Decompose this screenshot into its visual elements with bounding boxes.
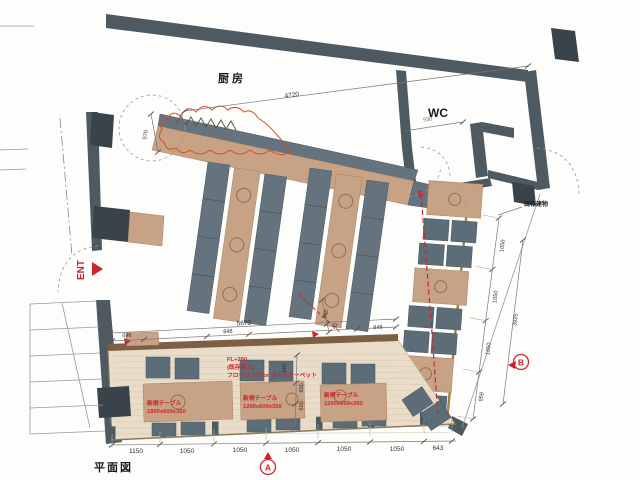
- witness-line: [483, 215, 499, 218]
- chair: [451, 220, 477, 243]
- chair: [423, 218, 449, 241]
- existing-note-leader: [498, 207, 522, 215]
- dim-kitchen-width: 4720: [284, 91, 300, 100]
- low-table-left: [97, 386, 131, 418]
- dim-right-0: 1050: [499, 239, 506, 252]
- entrance-arrow: [92, 262, 103, 276]
- dim-bottom-line: [112, 441, 456, 445]
- cushion: [152, 423, 176, 436]
- dim-bottom-4: 1050: [337, 446, 352, 453]
- stair-direction-line: [62, 303, 90, 428]
- table: [427, 181, 483, 219]
- dim-bottom-0: 1150: [129, 448, 143, 455]
- dim-bottom-2: 1050: [233, 447, 248, 454]
- dim-right-3: 959: [478, 392, 485, 402]
- chair: [418, 243, 444, 266]
- drawing-title: 平面図: [94, 460, 133, 474]
- cushion: [181, 422, 205, 435]
- marker-a-arrow: [264, 452, 272, 459]
- stairs: [30, 301, 105, 434]
- dim-right-2: 1050: [485, 342, 492, 355]
- table1-label: 新規テーブル: [147, 399, 182, 407]
- chair: [436, 307, 462, 330]
- marker-b-letter: B: [518, 358, 524, 368]
- dim-right-total: 3925: [512, 313, 519, 326]
- kitchen-label: 厨房: [218, 71, 246, 85]
- top-right-column: [551, 28, 579, 62]
- floor-finish-note: フローリング or タイルカーペット: [227, 371, 317, 379]
- dim-step-b: 92: [333, 322, 340, 329]
- margin-line: [0, 169, 26, 170]
- ent-column: [92, 206, 130, 242]
- table: [412, 268, 468, 306]
- cushion: [351, 364, 375, 385]
- margin-line: [0, 149, 28, 150]
- left-top-column: [90, 112, 114, 148]
- table3-size: 1200x600x350: [324, 401, 363, 407]
- property-line: [60, 118, 72, 256]
- existing-building-note: 既存建物: [524, 200, 548, 208]
- floor-post: [212, 422, 219, 435]
- floor-plan-page: FL+250 (既存床上) フローリング or タイルカーペット 新規テーブル …: [0, 0, 640, 480]
- dim-right-chain-line: [473, 218, 499, 419]
- top-wall: [106, 14, 528, 82]
- dim-hall-left: 646: [122, 333, 132, 339]
- dim-hall-mid: 848: [223, 329, 233, 335]
- witness-line: [463, 369, 479, 372]
- dim-table-depth-c: 600: [299, 401, 305, 411]
- stair-step: [30, 431, 105, 434]
- dim-wc-line: [404, 122, 463, 131]
- table3-label: 新規テーブル: [324, 391, 359, 399]
- table1-size: 1800x600x350: [147, 409, 186, 415]
- cushion: [247, 419, 271, 432]
- stair-step: [30, 301, 97, 304]
- entrance-label: ENT: [76, 260, 87, 280]
- floor-base-note: (既存床上): [227, 363, 254, 371]
- marker-a-letter: A: [265, 463, 271, 473]
- dim-right-1: 1050: [492, 290, 499, 303]
- dim-bottom-1: 1050: [180, 448, 195, 455]
- stair-step: [30, 353, 100, 356]
- raised-floor-area: [97, 332, 455, 440]
- cushion: [146, 357, 170, 378]
- dim-kitchen-depth: 570: [142, 130, 150, 140]
- chair: [446, 245, 472, 268]
- stair-step: [30, 327, 99, 330]
- dim-bottom-3: 1050: [285, 447, 300, 454]
- floor-level-note: FL+250: [227, 357, 247, 363]
- floor-plan-drawing: FL+250 (既存床上) フローリング or タイルカーペット 新規テーブル …: [0, 0, 640, 480]
- cushion: [322, 363, 346, 384]
- dim-bottom-5: 1050: [390, 446, 405, 453]
- dim-table-depth-b: 600: [299, 383, 305, 393]
- cushion: [175, 358, 199, 379]
- dim-hall-width: 5673: [237, 320, 252, 328]
- seating-row-group-2: [289, 168, 390, 332]
- witness-line: [470, 318, 486, 321]
- dim-bottom-6: 643: [433, 445, 444, 452]
- stair-step: [30, 379, 102, 382]
- chair: [431, 332, 457, 355]
- wc-label: WC: [428, 106, 448, 120]
- ent-side-counter: [128, 212, 164, 246]
- seating-row-group-1: [187, 162, 288, 326]
- table2-size: 1200x600x350: [243, 404, 282, 410]
- chair: [403, 330, 429, 353]
- wc-lower-wall2: [482, 122, 514, 138]
- table2-label: 新規テーブル: [243, 394, 278, 402]
- wc-right-wall: [524, 70, 550, 190]
- wc-door-swing: [421, 147, 450, 176]
- stair-step: [30, 405, 103, 408]
- kitchen-counter: [152, 114, 440, 209]
- dim-table-depth-a: 600: [282, 363, 288, 373]
- dim-hall-right: 848: [373, 325, 383, 331]
- witness-line: [476, 266, 492, 269]
